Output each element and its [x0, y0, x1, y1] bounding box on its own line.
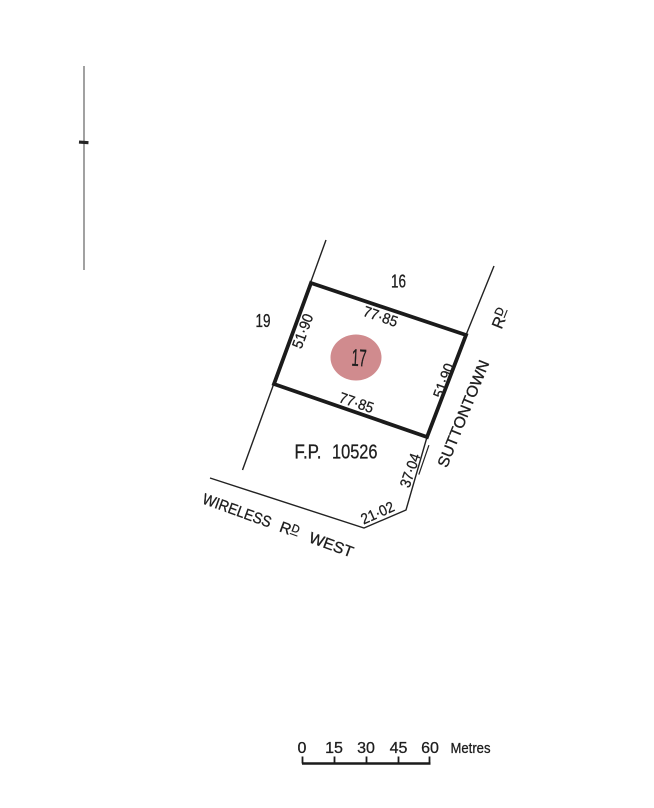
- svg-text:WIRELESS: WIRELESS: [200, 491, 273, 532]
- svg-text:77·85: 77·85: [361, 303, 400, 331]
- svg-text:16: 16: [391, 272, 406, 292]
- svg-text:51·90: 51·90: [289, 312, 317, 351]
- svg-text:0: 0: [298, 740, 307, 757]
- svg-text:51·90: 51·90: [430, 361, 458, 400]
- svg-text:10526: 10526: [332, 442, 378, 464]
- svg-text:WEST: WEST: [306, 530, 356, 562]
- svg-text:21·02: 21·02: [358, 499, 397, 529]
- svg-text:F.P.: F.P.: [295, 442, 322, 464]
- svg-text:Metres: Metres: [451, 740, 491, 757]
- svg-text:17: 17: [351, 345, 367, 373]
- svg-text:15: 15: [325, 740, 343, 757]
- svg-text:60: 60: [421, 740, 439, 757]
- svg-text:45: 45: [390, 740, 408, 757]
- svg-text:19: 19: [256, 311, 271, 331]
- svg-text:30: 30: [357, 740, 375, 757]
